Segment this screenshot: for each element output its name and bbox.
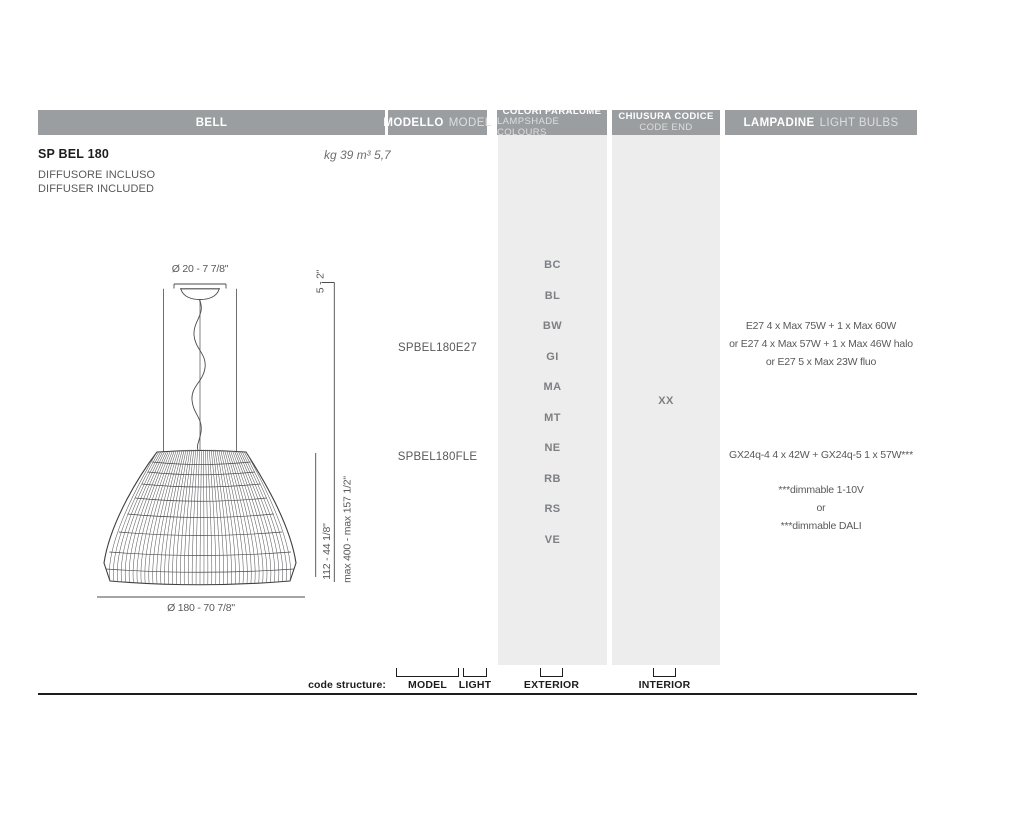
code-part-exterior: EXTERIOR xyxy=(511,679,592,691)
bulb-e27-line3: or E27 5 x Max 23W fluo xyxy=(723,353,919,371)
column-header-light-bulbs: LAMPADINE LIGHT BULBS xyxy=(725,110,917,135)
column-header-product: BELL xyxy=(38,110,385,135)
column-header-model: MODELLO MODEL xyxy=(388,110,487,135)
bracket-model xyxy=(396,668,459,677)
header-modello-it: MODELLO xyxy=(383,117,443,129)
colour-code-ne: NE xyxy=(498,442,607,454)
bulb-spec-e27: E27 4 x Max 75W + 1 x Max 60W or E27 4 x… xyxy=(723,317,919,371)
colour-code-ve: VE xyxy=(498,534,607,546)
dim-max-height-label: max 400 - max 157 1/2" xyxy=(342,476,354,583)
dim-canopy-height-label: 5 - 2" xyxy=(315,269,327,293)
dimming-note-3: ***dimmable DALI xyxy=(723,517,919,535)
code-part-interior: INTERIOR xyxy=(624,679,705,691)
colour-code-rs: RS xyxy=(498,503,607,515)
header-chiusura-it: CHIUSURA CODICE xyxy=(618,112,713,123)
header-chiusura-en: CODE END xyxy=(639,123,692,134)
spec-sheet: BELL MODELLO MODEL COLORI PARALUME LAMPS… xyxy=(0,0,1022,837)
header-modello-en: MODEL xyxy=(449,117,492,129)
model-code-fle: SPBEL180FLE xyxy=(388,451,487,463)
code-end-value: XX xyxy=(612,395,720,407)
weight-volume-label: kg 39 m³ 5,7 xyxy=(324,148,391,162)
colour-code-mt: MT xyxy=(498,412,607,424)
column-header-lampshade-colours: COLORI PARALUME LAMPSHADE COLOURS xyxy=(497,110,607,135)
bracket-exterior xyxy=(540,668,563,677)
dimming-note-2: or xyxy=(723,499,919,517)
bulb-e27-line2: or E27 4 x Max 57W + 1 x Max 46W halo xyxy=(723,335,919,353)
bracket-light xyxy=(463,668,487,677)
diffuser-note-en: DIFFUSER INCLUDED xyxy=(38,183,155,197)
colour-code-ma: MA xyxy=(498,381,607,393)
code-part-light: LIGHT xyxy=(439,679,511,691)
diffuser-note: DIFFUSORE INCLUSO DIFFUSER INCLUDED xyxy=(38,169,155,196)
dim-canopy-line xyxy=(174,284,226,289)
model-code-e27: SPBEL180E27 xyxy=(388,342,487,354)
colour-code-bw: BW xyxy=(498,320,607,332)
bulb-dimming-notes: ***dimmable 1-10V or ***dimmable DALI xyxy=(723,481,919,535)
header-lampadine-en: LIGHT BULBS xyxy=(820,117,899,129)
colour-code-rb: RB xyxy=(498,473,607,485)
lampshade-colours-column-bg xyxy=(498,135,607,665)
technical-drawing: Ø 20 - 7 7/8" 5 - 2" 112 - 44 1/8" max 4… xyxy=(90,255,360,620)
dim-canopy-diameter-label: Ø 20 - 7 7/8" xyxy=(172,263,229,275)
dim-diameter-label: Ø 180 - 70 7/8" xyxy=(167,602,235,614)
product-family-title: BELL xyxy=(196,117,228,129)
power-cable xyxy=(192,300,205,450)
bracket-interior xyxy=(653,668,676,677)
bulb-spec-fle: GX24q-4 4 x 42W + GX24q-5 1 x 57W*** xyxy=(723,446,919,464)
bulb-e27-line1: E27 4 x Max 75W + 1 x Max 60W xyxy=(723,317,919,335)
code-structure-label: code structure: xyxy=(250,679,386,691)
dim-shade-height-label: 112 - 44 1/8" xyxy=(321,523,333,580)
colour-code-bl: BL xyxy=(498,290,607,302)
diffuser-note-it: DIFFUSORE INCLUSO xyxy=(38,169,155,183)
bottom-rule xyxy=(38,693,917,695)
canopy-bowl xyxy=(181,289,219,299)
column-header-code-end: CHIUSURA CODICE CODE END xyxy=(612,110,720,135)
shade-ribs xyxy=(109,450,290,585)
header-lampadine-it: LAMPADINE xyxy=(743,117,814,129)
colour-code-gi: GI xyxy=(498,351,607,363)
product-code-title: SP BEL 180 xyxy=(38,147,109,161)
colour-code-bc: BC xyxy=(498,259,607,271)
dimming-note-1: ***dimmable 1-10V xyxy=(723,481,919,499)
